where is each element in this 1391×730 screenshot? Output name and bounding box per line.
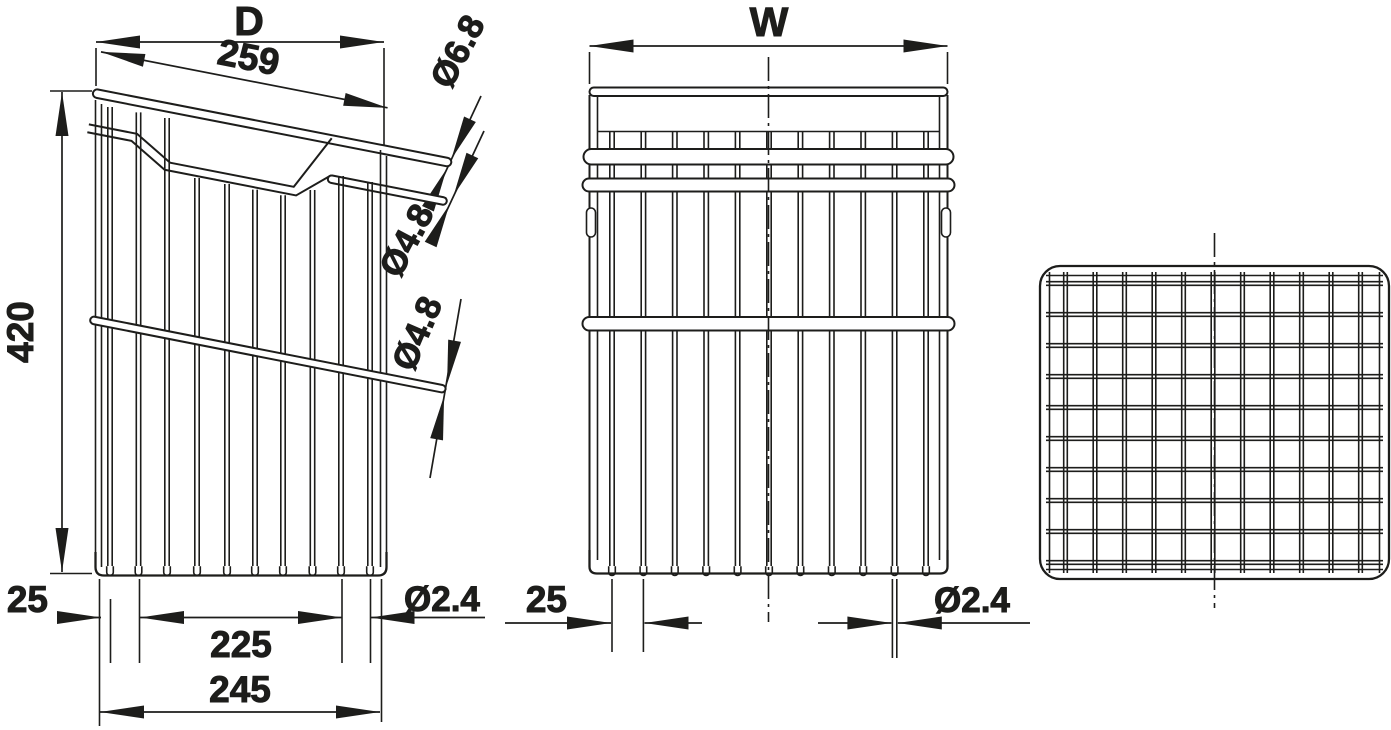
front-left-hook [587,208,596,237]
technical-drawing: 259 D 420 25 225 245 Ø2. [0,0,1391,730]
dim-label-width: W [750,0,789,45]
dia-label-top-rail: Ø6.8 [423,9,493,94]
dim-label-225: 225 [210,624,272,665]
side-view: 259 D 420 25 225 245 Ø2. [0,0,493,726]
front-right-hook [942,208,951,237]
dia-label-wire-side: Ø2.4 [404,580,480,619]
dim-label-depth: D [234,0,264,44]
dim-label-420: 420 [0,301,41,363]
top-view [1040,233,1389,608]
side-upper-rail-end [327,175,447,206]
dim-label-25-front: 25 [526,579,567,620]
dim-label-25-side: 25 [7,579,48,620]
front-dimension-arrows [567,40,948,630]
side-dip-upper-wire [85,92,332,192]
dia-label-middle-rail: Ø4.8 [385,291,451,376]
dia-label-wire-front: Ø2.4 [934,581,1010,620]
front-basket-wires-2 [614,132,928,566]
side-basket-body [96,100,387,576]
dim-label-245: 245 [209,669,271,710]
side-wire-feet [107,566,374,575]
side-top-rail-bar [92,89,452,167]
side-dip-lower-wire [83,128,446,223]
drawing-root: 259 D 420 25 225 245 Ø2. [0,0,1389,726]
front-basket-wires [610,132,924,566]
front-view: W 25 Ø2.4 [505,0,1030,658]
